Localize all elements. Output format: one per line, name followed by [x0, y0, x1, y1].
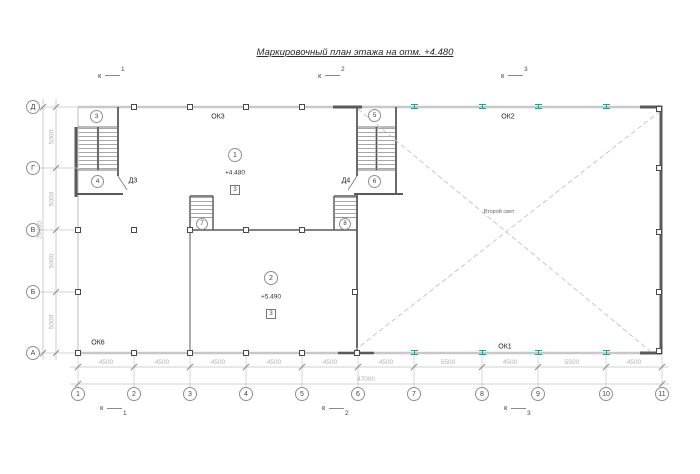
row-axis-circle: Б: [26, 285, 40, 299]
row-axis-circle: Д: [26, 100, 40, 114]
dimension-label: 4500: [211, 359, 225, 366]
column-square-marker: [131, 104, 137, 110]
steel-column-icon: [535, 350, 542, 355]
column-axis-circle: 6: [351, 387, 365, 401]
finish-type: 3: [269, 311, 272, 317]
column-square-marker: [656, 165, 662, 171]
dimension-label: 4500: [267, 359, 281, 366]
section-mark-k2-bottom: к2: [322, 403, 352, 419]
dimension-label: 5000: [49, 254, 56, 268]
dimension-label: 4500: [627, 359, 641, 366]
dimension-label: 4500: [99, 359, 113, 366]
door-label-d4: Д4: [342, 178, 351, 185]
room-number: 1: [233, 152, 237, 159]
column-square-marker: [354, 350, 360, 356]
column-square-marker: [75, 227, 81, 233]
column-axis-label: 3: [188, 391, 192, 398]
stair-treads: [335, 197, 356, 217]
stair-marker-circle: 5: [368, 109, 381, 122]
stair-number: 6: [373, 178, 377, 185]
stair-number: 4: [96, 178, 100, 185]
stair-treads: [99, 128, 117, 169]
section-number: 1: [123, 410, 127, 417]
section-line: [325, 75, 340, 76]
section-line: [105, 75, 120, 76]
column-square-marker: [299, 350, 305, 356]
column-axis-circle: 3: [183, 387, 197, 401]
section-number: 2: [341, 66, 345, 73]
column-square-marker: [243, 350, 249, 356]
section-letter: к: [501, 71, 504, 80]
stair-marker-circle: 7: [196, 218, 208, 230]
column-axis-circle: 2: [127, 387, 141, 401]
finish-type-box: 3: [266, 309, 276, 319]
window-label-ok2: ОК2: [501, 114, 514, 121]
total-dimension-label: 20000: [37, 221, 44, 239]
left-dimension-lines: [40, 99, 78, 360]
column-axis-label: 7: [412, 391, 416, 398]
dimension-label: 4500: [379, 359, 393, 366]
column-square-marker: [131, 227, 137, 233]
stair-treads: [358, 128, 376, 169]
column-axis-circle: 11: [655, 387, 669, 401]
column-axis-label: 1: [76, 391, 80, 398]
column-square-marker: [243, 227, 249, 233]
stair-number: 5: [373, 112, 377, 119]
column-square-marker: [75, 350, 81, 356]
window-label-ok1: ОК1: [498, 344, 511, 351]
column-axis-circle: 9: [531, 387, 545, 401]
column-axis-circle: 4: [239, 387, 253, 401]
steel-column-icon: [603, 104, 610, 109]
dimension-label: 5500: [565, 359, 579, 366]
column-square-marker: [656, 229, 662, 235]
section-letter: к: [318, 71, 321, 80]
room-number-circle: 1: [228, 148, 242, 162]
section-letter: к: [98, 71, 101, 80]
window-label-ok3: ОК3: [211, 114, 224, 121]
section-line: [329, 408, 344, 409]
column-square-marker: [187, 350, 193, 356]
elevation-label: +4.480: [225, 170, 245, 177]
section-number: 3: [527, 410, 531, 417]
column-square-marker: [352, 289, 358, 295]
dimension-label: 4500: [503, 359, 517, 366]
second-light-label: Второй свет: [484, 209, 515, 215]
column-square-marker: [299, 104, 305, 110]
stair-treads: [378, 128, 396, 169]
floor-plan-sheet: Маркировочный план этажа на отм. +4.480 …: [0, 0, 700, 474]
stair-number: 3: [95, 113, 99, 120]
column-square-marker: [131, 350, 137, 356]
dimension-label: 5000: [49, 130, 56, 144]
column-square-marker: [656, 106, 662, 112]
section-line: [511, 408, 526, 409]
row-axis-label: Д: [31, 104, 36, 111]
finish-type: 3: [233, 187, 236, 193]
section-mark-k2-top: к2: [318, 68, 348, 84]
column-square-marker: [187, 227, 193, 233]
section-line: [508, 75, 523, 76]
dimension-label: 4500: [155, 359, 169, 366]
column-square-marker: [187, 104, 193, 110]
column-axis-circle: 5: [295, 387, 309, 401]
section-mark-k3-bottom: к3: [504, 403, 534, 419]
column-axis-circle: 10: [599, 387, 613, 401]
column-square-marker: [656, 348, 662, 354]
elevation-label: +5.490: [261, 294, 281, 301]
column-axis-label: 4: [244, 391, 248, 398]
section-number: 3: [524, 66, 528, 73]
stair-marker-circle: 3: [90, 110, 103, 123]
section-line: [107, 408, 122, 409]
section-letter: к: [504, 403, 507, 412]
column-axis-circle: 7: [407, 387, 421, 401]
door-label-d3: Д3: [129, 178, 138, 185]
room-number: 2: [269, 275, 273, 282]
column-axis-label: 8: [480, 391, 484, 398]
steel-column-icon: [479, 104, 486, 109]
section-number: 1: [121, 66, 125, 73]
column-axis-circle: 8: [475, 387, 489, 401]
stair-number: 8: [343, 221, 346, 227]
row-axis-label: Г: [31, 165, 35, 172]
row-axis-circle: Г: [26, 161, 40, 175]
column-axis-label: 11: [658, 391, 665, 398]
column-axis-label: 9: [536, 391, 540, 398]
stair-treads: [79, 128, 97, 169]
section-mark-k1-top: к1: [98, 68, 128, 84]
column-axis-circle: 1: [71, 387, 85, 401]
column-axis-label: 10: [602, 391, 610, 398]
steel-column-icon: [535, 104, 542, 109]
row-axis-label: В: [31, 227, 36, 234]
row-axis-label: А: [31, 350, 36, 357]
window-label-ok6: ОК6: [91, 340, 104, 347]
finish-type-box: 3: [230, 185, 240, 195]
section-letter: к: [322, 403, 325, 412]
dimension-label: 4500: [323, 359, 337, 366]
column-axis-label: 2: [132, 391, 136, 398]
dimension-label: 5500: [441, 359, 455, 366]
section-letter: к: [100, 403, 103, 412]
stair-number: 7: [200, 221, 203, 227]
section-mark-k1-bottom: к1: [100, 403, 130, 419]
column-square-marker: [299, 227, 305, 233]
column-square-marker: [243, 104, 249, 110]
second-light-diagonals: [354, 109, 659, 351]
steel-column-icon: [411, 104, 418, 109]
steel-column-icon: [479, 350, 486, 355]
steel-column-icon: [411, 350, 418, 355]
column-square-marker: [75, 289, 81, 295]
column-square-marker: [656, 289, 662, 295]
steel-column-icon: [603, 350, 610, 355]
section-mark-k3-top: к3: [501, 68, 531, 84]
room-number-circle: 2: [264, 271, 278, 285]
stair-marker-circle: 4: [91, 175, 104, 188]
dimension-label: 5000: [49, 192, 56, 206]
row-axis-circle: А: [26, 346, 40, 360]
stair-marker-circle: 8: [339, 218, 351, 230]
column-axis-label: 6: [356, 391, 360, 398]
dimension-label: 5000: [49, 315, 56, 329]
total-dimension-label: 47000: [357, 376, 375, 383]
section-number: 2: [345, 410, 349, 417]
column-axis-label: 5: [300, 391, 304, 398]
stair-treads: [191, 197, 212, 217]
row-axis-label: Б: [31, 289, 36, 296]
stair-marker-circle: 6: [368, 175, 381, 188]
plan-title: Маркировочный план этажа на отм. +4.480: [257, 47, 454, 58]
